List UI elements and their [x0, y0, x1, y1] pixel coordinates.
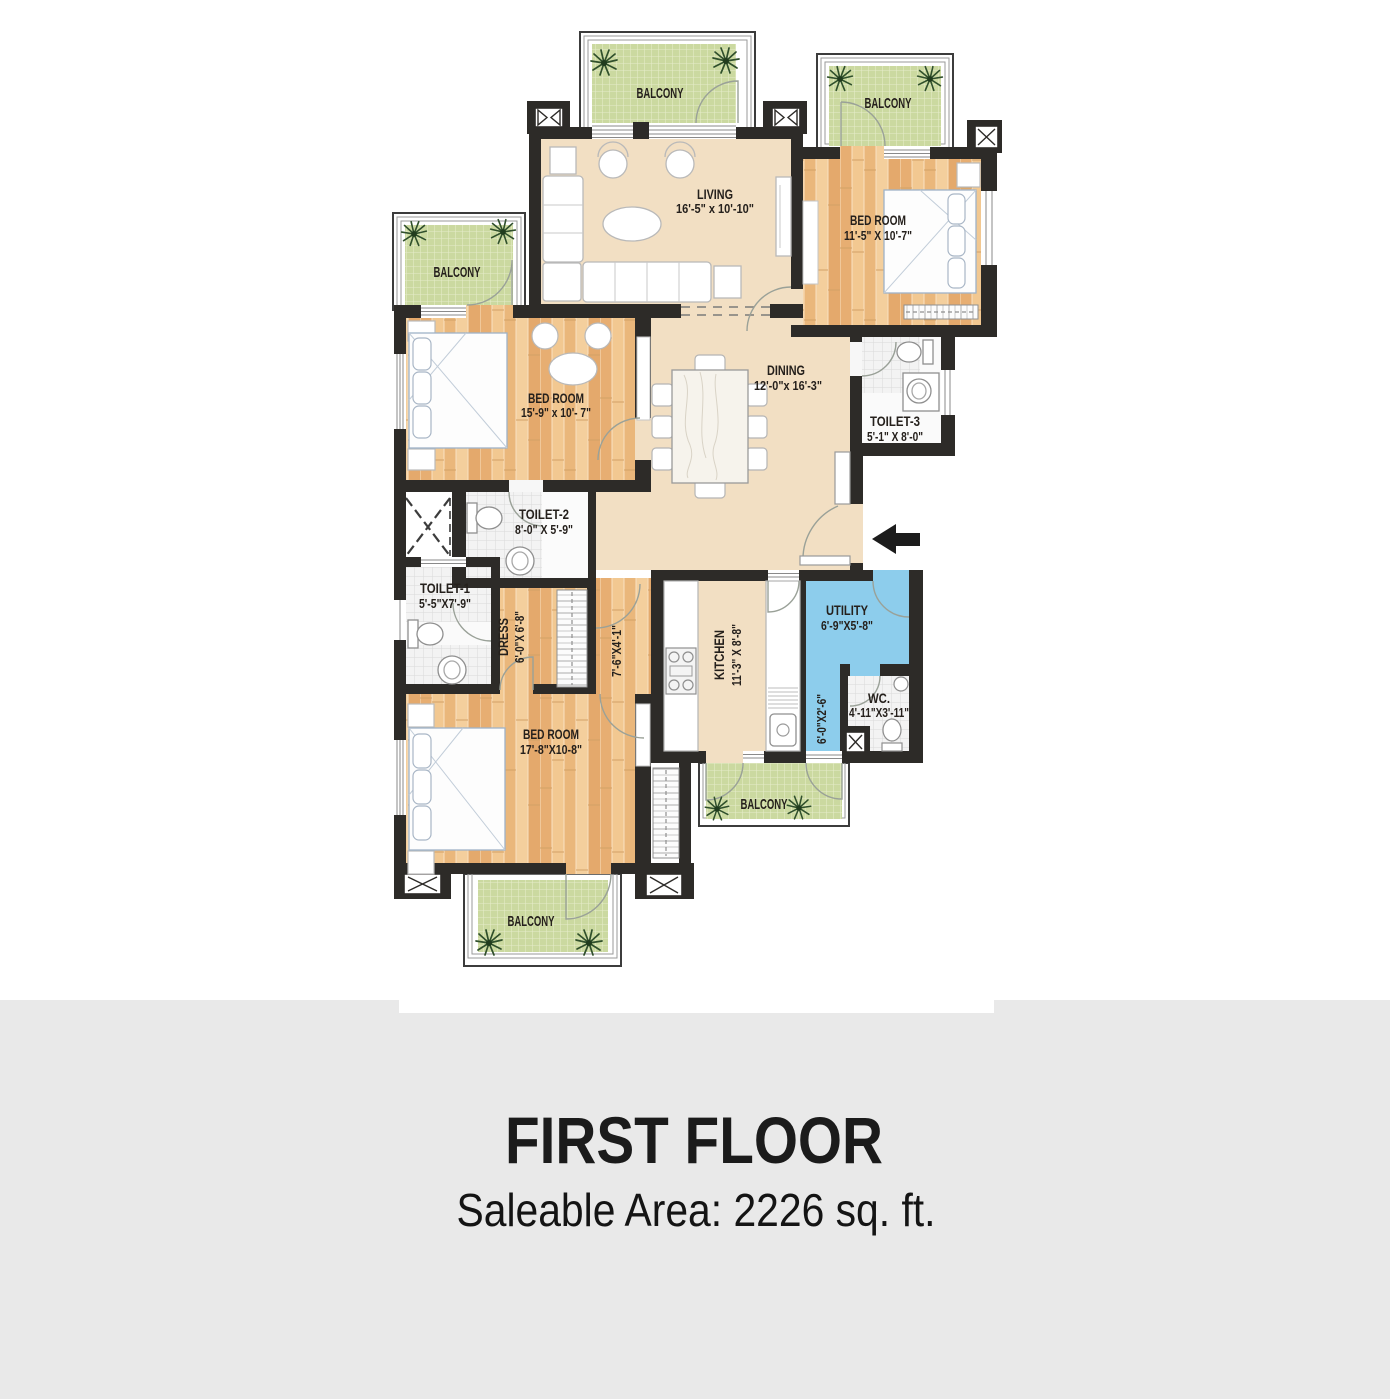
- svg-text:TOILET-1: TOILET-1: [420, 581, 470, 596]
- svg-text:8'-0" X 5'-9": 8'-0" X 5'-9": [515, 522, 573, 537]
- svg-text:FIRST FLOOR: FIRST FLOOR: [505, 1103, 883, 1177]
- svg-text:11'-3" X 8'-8": 11'-3" X 8'-8": [729, 624, 744, 686]
- svg-text:KITCHEN: KITCHEN: [711, 630, 727, 680]
- svg-text:LIVING: LIVING: [697, 186, 733, 202]
- svg-text:BALCONY: BALCONY: [508, 913, 555, 930]
- svg-text:BED ROOM: BED ROOM: [850, 212, 906, 228]
- svg-text:16'-5" x 10'-10": 16'-5" x 10'-10": [676, 201, 754, 216]
- svg-text:5'-1" X 8'-0": 5'-1" X 8'-0": [867, 429, 923, 444]
- svg-text:11'-5" X 10'-7": 11'-5" X 10'-7": [844, 228, 912, 243]
- svg-text:TOILET-3: TOILET-3: [870, 414, 920, 429]
- svg-text:UTILITY: UTILITY: [826, 603, 868, 618]
- svg-text:WC.: WC.: [868, 691, 890, 706]
- svg-text:15'-9" x 10'- 7": 15'-9" x 10'- 7": [521, 405, 591, 420]
- svg-text:DINING: DINING: [767, 362, 805, 378]
- svg-text:6'-0"X2'-6": 6'-0"X2'-6": [814, 694, 829, 744]
- svg-text:BALCONY: BALCONY: [434, 264, 481, 281]
- svg-text:BED ROOM: BED ROOM: [523, 726, 579, 742]
- svg-text:DRESS: DRESS: [495, 618, 511, 656]
- svg-text:4'-11"X3'-11": 4'-11"X3'-11": [849, 705, 909, 720]
- svg-text:BALCONY: BALCONY: [741, 796, 788, 813]
- svg-text:BED ROOM: BED ROOM: [528, 390, 584, 406]
- svg-text:6'-0"X 6'-8": 6'-0"X 6'-8": [512, 611, 527, 663]
- svg-text:BALCONY: BALCONY: [637, 85, 684, 102]
- svg-text:17'-8"X10-8": 17'-8"X10-8": [520, 742, 582, 757]
- svg-text:12'-0"x 16'-3": 12'-0"x 16'-3": [754, 378, 822, 393]
- svg-text:BALCONY: BALCONY: [865, 95, 912, 112]
- svg-text:TOILET-2: TOILET-2: [519, 507, 569, 522]
- svg-text:7'-6"X4'-1": 7'-6"X4'-1": [609, 625, 624, 677]
- svg-text:6'-9"X5'-8": 6'-9"X5'-8": [821, 618, 873, 633]
- svg-text:Saleable Area: 2226 sq. ft.: Saleable Area: 2226 sq. ft.: [457, 1184, 936, 1236]
- svg-text:5'-5"X7'-9": 5'-5"X7'-9": [419, 596, 471, 611]
